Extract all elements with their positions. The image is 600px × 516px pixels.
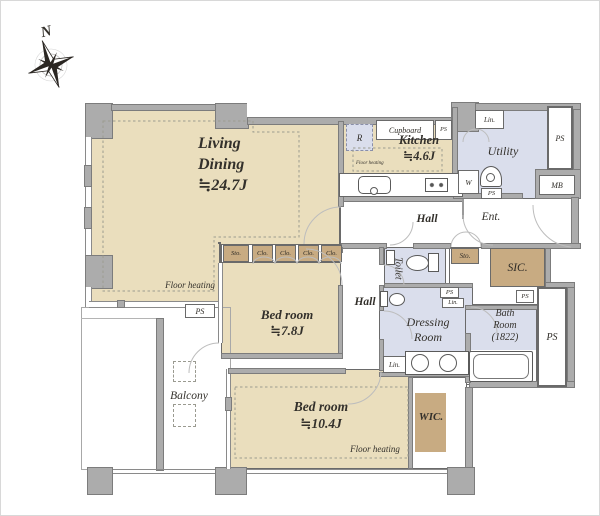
pillar-top-left: [85, 103, 113, 139]
vanity-basin-1: [411, 354, 429, 372]
wall-top-a: [111, 104, 219, 111]
closet-box-3: Clo.: [298, 245, 319, 262]
kitchen-sink-faucet: [370, 187, 378, 195]
wall-notch-white: [247, 101, 345, 117]
closet-box-1: Clo.: [252, 245, 273, 262]
pillar-top-mid: [215, 103, 249, 129]
kitchen-stove: [425, 178, 448, 192]
wall-left-mullion-2: [84, 207, 92, 229]
dressing-room-label: Dressing Room: [390, 315, 466, 345]
ps-box-dressing: PS: [440, 287, 459, 298]
balcony-planter-2: [173, 404, 196, 427]
wall-living-window-mullion: [117, 300, 125, 308]
pillar-bottom-right: [447, 467, 475, 495]
linen-box-dressing-lower: Lin.: [383, 356, 406, 373]
linen-box-utility: Lin.: [475, 110, 504, 129]
wall-bedroom2-window-mullion: [225, 397, 232, 411]
entrance-label: Ent.: [469, 210, 513, 224]
hall-lower-label: Hall: [345, 295, 385, 309]
pillar-bottom-left: [87, 467, 113, 495]
living-floor-heating-label: Floor heating: [145, 280, 235, 291]
washer-box: W: [458, 170, 479, 194]
toilet-tank: [428, 253, 439, 272]
closet-box-4: Clo.: [321, 245, 342, 262]
storage-box-hall: Sto.: [451, 248, 479, 264]
utility-label: Utility: [472, 144, 534, 159]
wall-ps-right: [567, 287, 575, 387]
wall-right-upper: [573, 109, 581, 171]
ps-box-sic: PS: [516, 290, 534, 303]
wic-label: WIC.: [413, 411, 449, 425]
toilet-label: Toilet: [391, 239, 404, 299]
wall-corridor-right-1: [379, 247, 384, 265]
wall-left-window-band: [85, 137, 92, 259]
wall-bedroom1-window: [218, 263, 223, 343]
hall-upper-label: Hall: [406, 212, 448, 226]
meter-box: MB: [539, 175, 575, 195]
utility-sink-bowl: [486, 173, 495, 182]
wall-sic-right: [545, 247, 551, 287]
bathtub-inner: [473, 354, 529, 379]
closet-box-2: Clo.: [275, 245, 296, 262]
vanity-basin-2: [439, 354, 457, 372]
kitchen-label: Kitchen ≒4.6J: [385, 133, 453, 164]
storage-box-bedroom1: Sto.: [223, 245, 249, 262]
ps-box-right: PS: [537, 287, 567, 387]
floor-plan: PS R Cupboard PS Lin. W PS PS MB PS Sto.…: [0, 0, 600, 516]
bedroom2-floor-heating-label: Floor heating: [337, 444, 413, 455]
kitchen-floor-heating-label: Floor heating: [356, 161, 390, 167]
wall-bottom-line2: [87, 473, 473, 474]
wall-bedroom2-window: [226, 369, 231, 469]
wall-bedroom1-bottom: [221, 353, 343, 359]
pillar-mid-left: [85, 255, 113, 289]
balcony-planter-1: [173, 361, 196, 382]
sic-closet: SIC.: [490, 248, 545, 287]
compass-north-label: N: [39, 22, 54, 43]
ps-box-utility: PS: [481, 188, 502, 199]
bedroom1-label: Bed room ≒7.8J: [241, 307, 333, 340]
ps-box-living: PS: [185, 304, 215, 318]
balcony-label: Balcony: [159, 389, 219, 403]
pillar-bottom-mid: [215, 467, 247, 495]
wall-wic-right: [465, 387, 473, 471]
wall-bottom-line1: [87, 469, 473, 470]
toilet-bowl: [406, 255, 429, 271]
bedroom2-label: Bed room ≒10.4J: [269, 399, 373, 433]
fridge-box: R: [346, 124, 373, 151]
wall-left-mullion-1: [84, 165, 92, 187]
wall-ent-hall-divider: [462, 199, 464, 219]
compass-icon: [20, 32, 82, 95]
wall-hall-bottom-b: [413, 243, 451, 249]
wall-right-entrance: [571, 197, 579, 247]
balcony-inner-line: [81, 318, 157, 319]
bath-room-label: Bath Room (1822): [479, 308, 531, 344]
wall-bedroom2-top: [228, 368, 346, 374]
room-living-seam: [92, 240, 218, 248]
ps-box-top-right: PS: [547, 106, 573, 170]
living-dining-label: Living Dining ≒24.7J: [198, 134, 298, 196]
wall-bedroom1-right-lower: [338, 285, 343, 355]
linen-box-dressing-upper: Lin.: [442, 298, 464, 308]
